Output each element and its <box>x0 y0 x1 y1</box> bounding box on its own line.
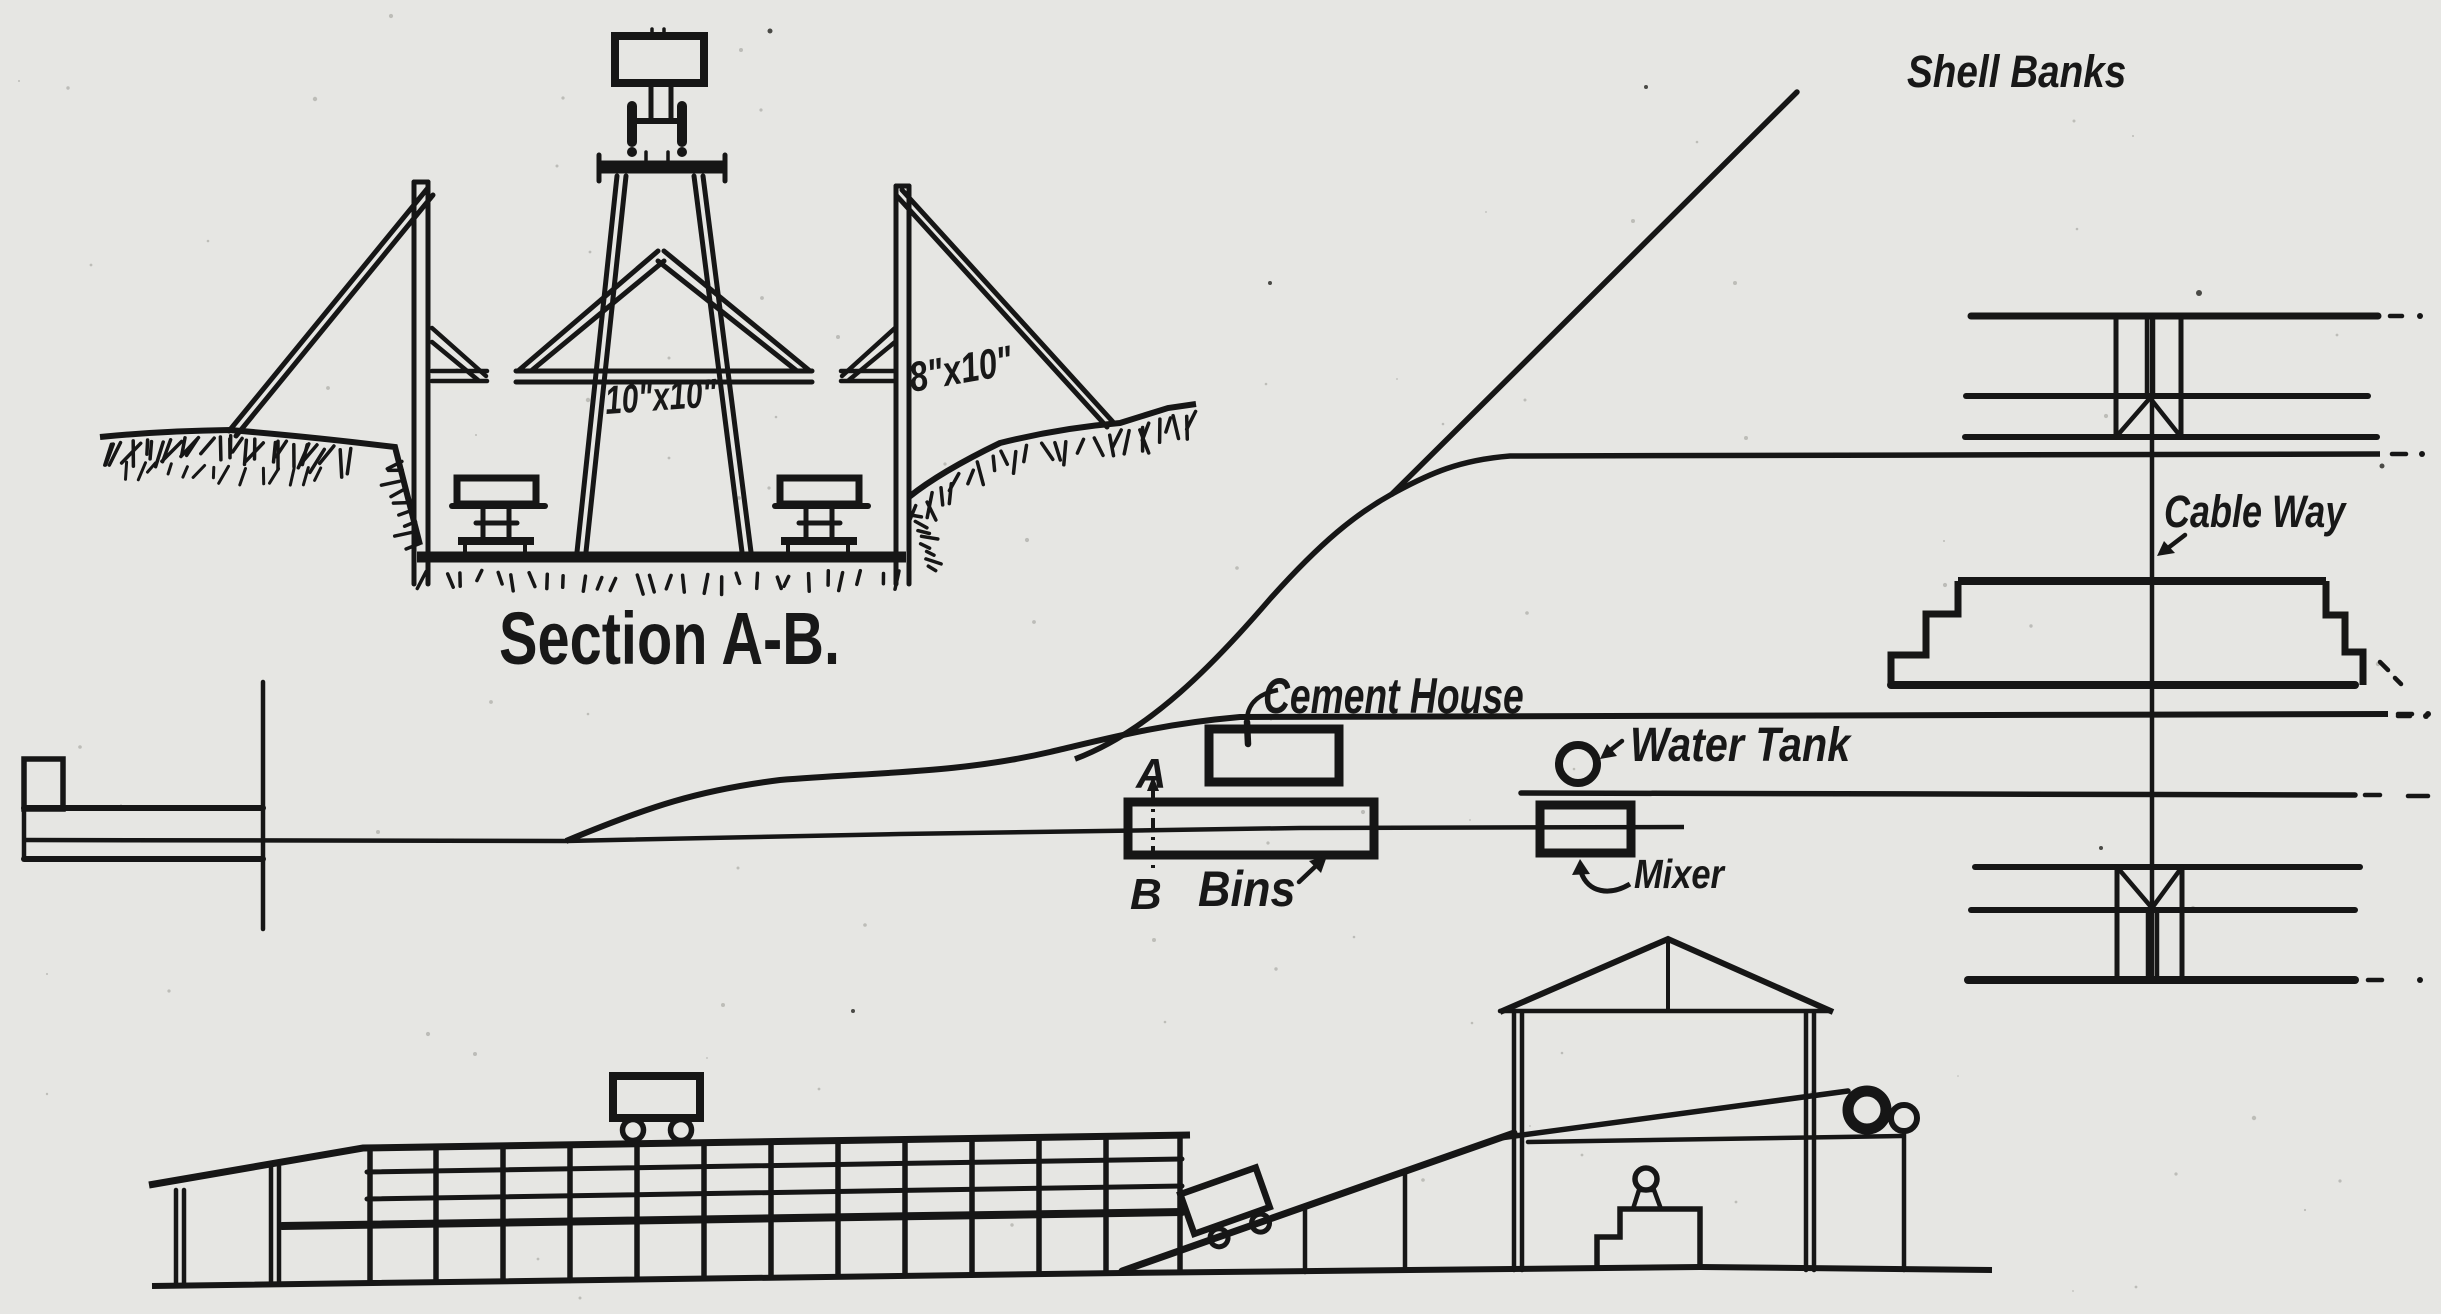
svg-text:Water Tank: Water Tank <box>1630 718 1852 772</box>
svg-text:Cement House: Cement House <box>1263 669 1524 725</box>
svg-text:Shell Banks: Shell Banks <box>1907 46 2126 96</box>
svg-text:Cable Way: Cable Way <box>2164 486 2347 537</box>
svg-text:B: B <box>1130 870 1162 919</box>
svg-text:Bins: Bins <box>1198 862 1295 918</box>
svg-text:Mixer: Mixer <box>1634 852 1726 897</box>
svg-text:10"x10": 10"x10" <box>604 371 720 423</box>
svg-text:Section A-B.: Section A-B. <box>499 598 840 681</box>
